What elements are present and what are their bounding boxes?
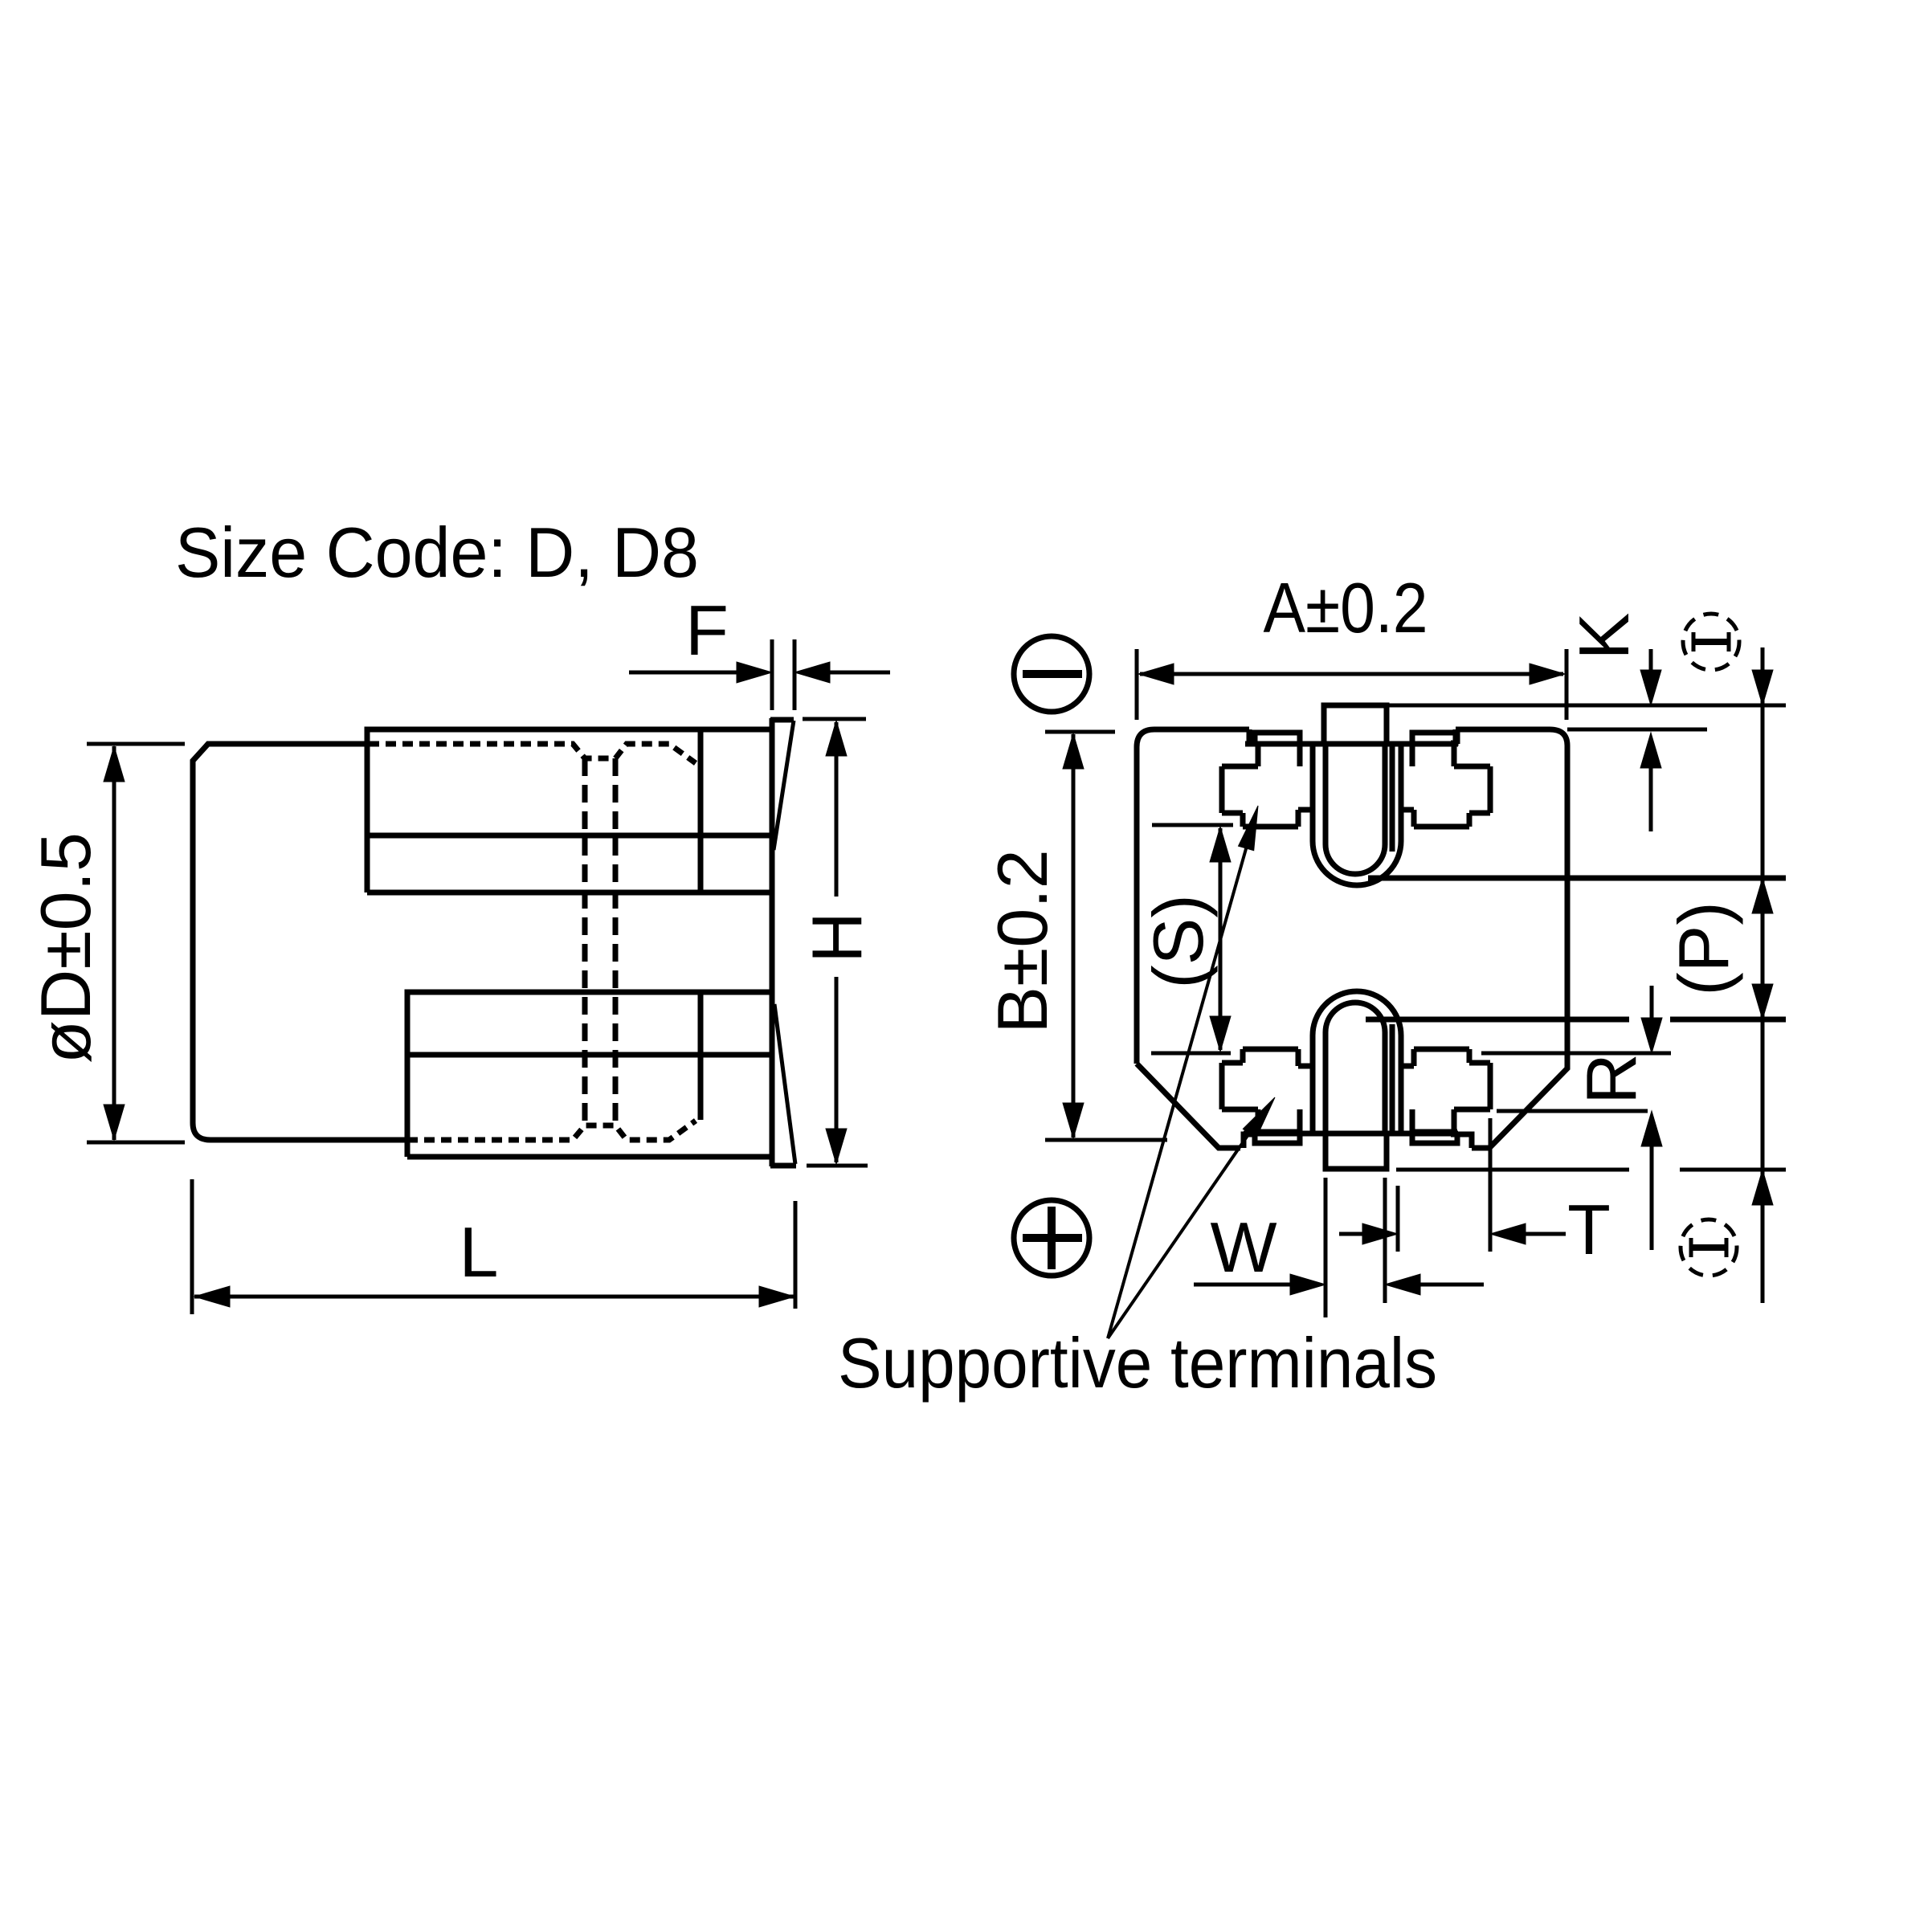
svg-text:R: R: [1571, 1053, 1651, 1105]
svg-text:Supportive terminals: Supportive terminals: [838, 1323, 1437, 1403]
svg-text:(P): (P): [1664, 901, 1743, 995]
svg-text:F: F: [685, 590, 729, 670]
svg-text:H: H: [797, 912, 876, 963]
svg-text:B±0.2: B±0.2: [982, 849, 1062, 1033]
svg-text:L: L: [460, 1212, 499, 1292]
svg-text:K: K: [1564, 613, 1644, 660]
svg-text:W: W: [1210, 1207, 1276, 1287]
svg-text:A±0.2: A±0.2: [1264, 568, 1428, 647]
svg-text:(S): (S): [1138, 894, 1218, 988]
svg-text:Size Code: D, D8: Size Code: D, D8: [175, 513, 699, 592]
svg-text:øD±0.5: øD±0.5: [26, 832, 105, 1064]
svg-text:T: T: [1567, 1190, 1611, 1269]
